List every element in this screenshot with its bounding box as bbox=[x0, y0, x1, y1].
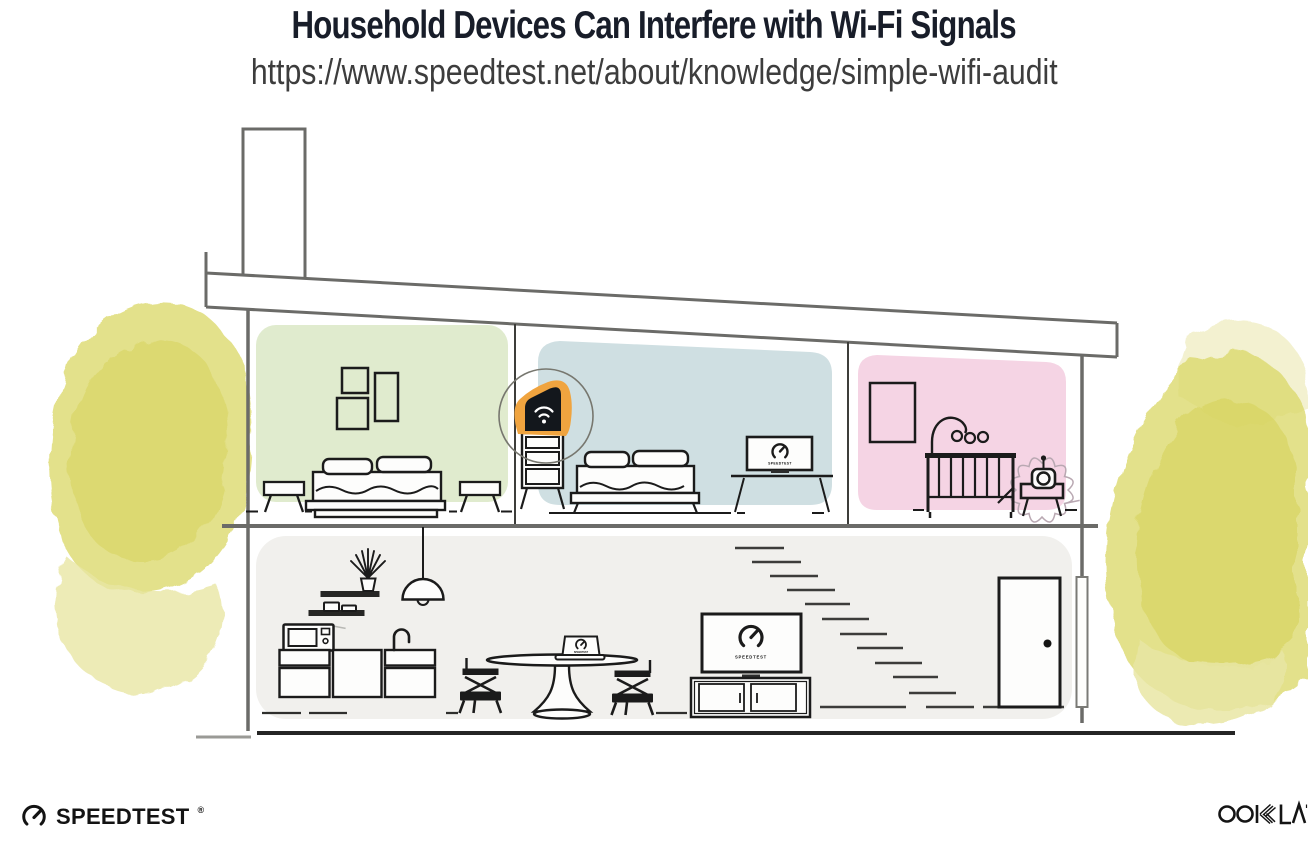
wifi-router bbox=[514, 380, 571, 436]
speedtest-logo: SPEEDTEST® bbox=[20, 803, 204, 831]
monitor-stand bbox=[771, 470, 789, 473]
ookla-k-hatch bbox=[1260, 805, 1276, 824]
front-door bbox=[999, 578, 1060, 707]
microwave bbox=[284, 625, 334, 651]
ookla-logo bbox=[1220, 805, 1307, 824]
speedtest-wordmark: SPEEDTEST bbox=[56, 804, 190, 830]
ookla-o2 bbox=[1238, 807, 1253, 822]
tv-screen-label: SPEEDTEST bbox=[735, 655, 767, 660]
registered-mark: ® bbox=[198, 805, 205, 815]
bowl bbox=[342, 606, 356, 612]
cup bbox=[324, 603, 339, 612]
ookla-a bbox=[1293, 805, 1305, 824]
bedroom-monitor-label: SPEEDTEST bbox=[768, 462, 792, 466]
foliage-right bbox=[1106, 321, 1308, 726]
laptop-screen-label: SPEEDTEST bbox=[574, 651, 589, 654]
antenna-dot bbox=[1041, 455, 1046, 460]
living-room: SPEEDTEST bbox=[691, 614, 810, 717]
foliage-left bbox=[50, 301, 253, 693]
door-knob bbox=[1044, 640, 1052, 648]
speedtest-gauge-icon bbox=[20, 803, 48, 831]
media-console bbox=[691, 678, 810, 717]
kitchen-cabinets bbox=[280, 650, 436, 697]
infographic-canvas: Household Devices Can Interfere with Wi-… bbox=[0, 0, 1308, 861]
ookla-l bbox=[1281, 805, 1291, 824]
chimney bbox=[243, 129, 305, 278]
downspout bbox=[1077, 577, 1088, 707]
bed-blue bbox=[571, 451, 699, 513]
living-room-tv: SPEEDTEST bbox=[702, 614, 801, 678]
ookla-o1 bbox=[1220, 807, 1235, 822]
house-illustration: SPEEDTEST bbox=[0, 0, 1308, 861]
bedroom-monitor: SPEEDTEST bbox=[747, 437, 812, 473]
